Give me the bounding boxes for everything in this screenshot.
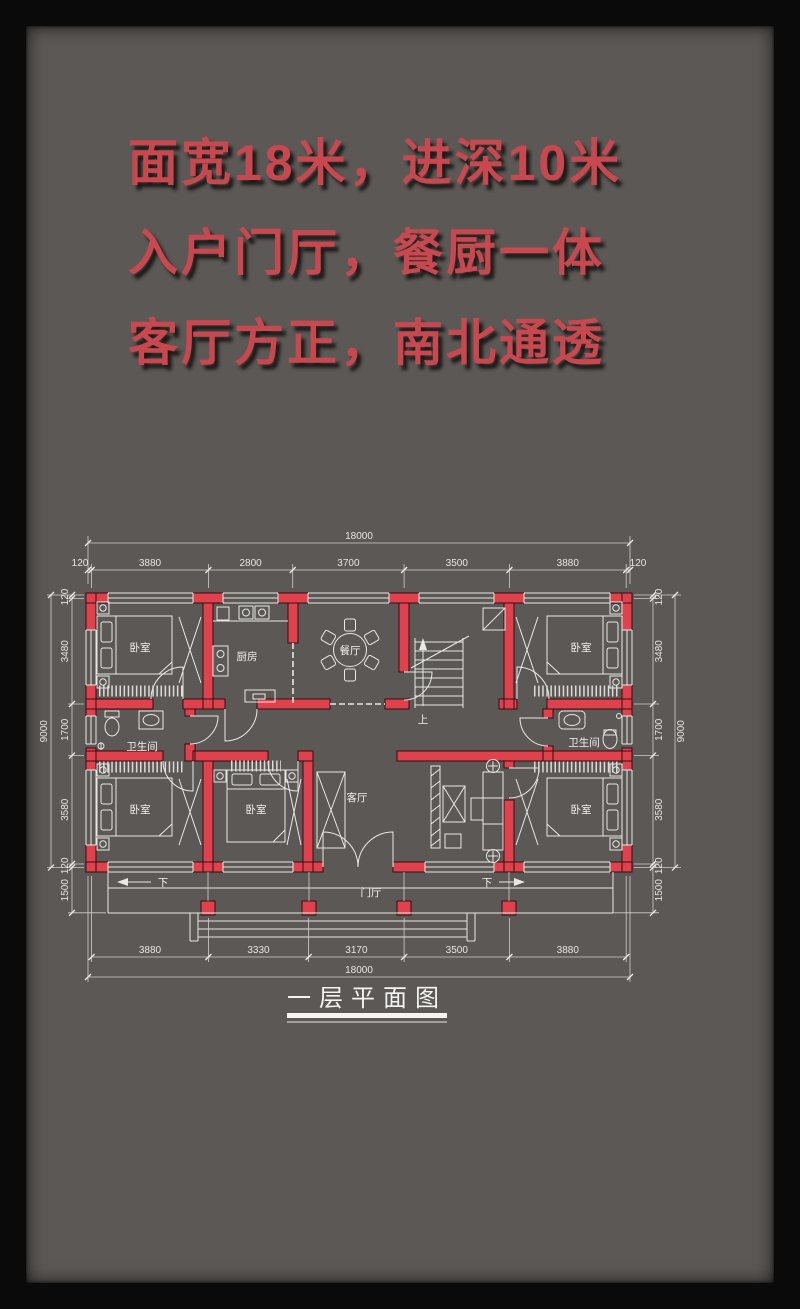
kitchen-label: 厨房 (237, 650, 258, 663)
dim-left-3580: 3580 (60, 798, 71, 821)
dim-bottom-3880-right: 3880 (557, 945, 580, 956)
dim-left-total: 9000 (39, 720, 50, 743)
plan-title-block: 一层平面图 (287, 985, 447, 1022)
bedroom-label-4: 卧室 (246, 803, 267, 816)
down-arrow-left (117, 878, 128, 886)
dim-bottom-total: 18000 (345, 965, 373, 976)
dim-right-3580: 3580 (654, 798, 665, 821)
down-label-left: 下 (158, 877, 169, 889)
dim-bottom-3880-left: 3880 (139, 945, 162, 956)
living-label: 客厅 (347, 791, 368, 804)
bedroom-label-5: 卧室 (571, 803, 592, 816)
tagline: 面宽18米，进深10米 入户门厅，餐厨一体 客厅方正，南北通透 (128, 118, 622, 388)
down-arrow-right (514, 878, 525, 886)
dim-bottom-3330: 3330 (247, 945, 270, 956)
foyer-label: 门厅 (361, 886, 382, 899)
dim-left-1500: 1500 (60, 879, 71, 902)
poster-page: 面宽18米，进深10米 入户门厅，餐厨一体 客厅方正，南北通透 (0, 0, 800, 1309)
dim-right-120-bottom: 120 (654, 857, 665, 874)
poster-background: 面宽18米，进深10米 入户门厅，餐厨一体 客厅方正，南北通透 (26, 26, 774, 1283)
dim-top-3500: 3500 (446, 558, 469, 569)
title-underline-thick (287, 1013, 447, 1018)
bedroom-label-2: 卧室 (571, 641, 592, 654)
bedroom-label-1: 卧室 (130, 641, 151, 654)
entry-double-door (323, 832, 393, 867)
dim-left-120-bottom: 120 (60, 857, 71, 874)
living-furniture (431, 760, 503, 863)
bedroom-label-3: 卧室 (130, 803, 151, 816)
dim-top-120-left: 120 (72, 558, 89, 569)
bathroom-label-right: 卫生间 (568, 736, 600, 749)
dim-left-120-top: 120 (60, 588, 71, 605)
entry-closet (317, 772, 345, 848)
dim-top-total: 18000 (345, 531, 373, 542)
dim-right-total: 9000 (676, 720, 687, 743)
stairs-up-label: 上 (418, 714, 429, 726)
plan-title: 一层平面图 (287, 985, 447, 1012)
dim-right-1700: 1700 (654, 718, 665, 741)
dim-top-3880-left: 3880 (139, 558, 162, 569)
down-label-right: 下 (482, 877, 493, 889)
dim-left-1700: 1700 (60, 718, 71, 741)
dim-top-3700: 3700 (337, 558, 360, 569)
tagline-line-2: 入户门厅，餐厨一体 (128, 208, 622, 298)
tagline-line-1: 面宽18米，进深10米 (128, 118, 622, 208)
tagline-line-3: 客厅方正，南北通透 (128, 298, 622, 388)
dim-top-2800: 2800 (239, 558, 262, 569)
dining-label: 餐厅 (340, 644, 361, 657)
furniture (97, 602, 622, 863)
dim-bottom-3500: 3500 (446, 945, 469, 956)
dim-left-3480: 3480 (60, 640, 71, 663)
floor-plan: 下 下 门厅 卧室 卧室 卧室 卧室 卧室 厨房 餐厅 客厅 卫生间 卫生间 上 (35, 520, 695, 1030)
porch: 下 下 门厅 (108, 872, 613, 941)
dim-bottom-3170: 3170 (345, 945, 368, 956)
dim-right-120-top: 120 (654, 588, 665, 605)
dim-right-1500: 1500 (654, 879, 665, 902)
dim-top-120-right: 120 (630, 558, 647, 569)
dim-top-3880-right: 3880 (557, 558, 580, 569)
bathroom-label-left: 卫生间 (126, 740, 158, 753)
windows (86, 593, 632, 872)
dim-right-3480: 3480 (654, 640, 665, 663)
